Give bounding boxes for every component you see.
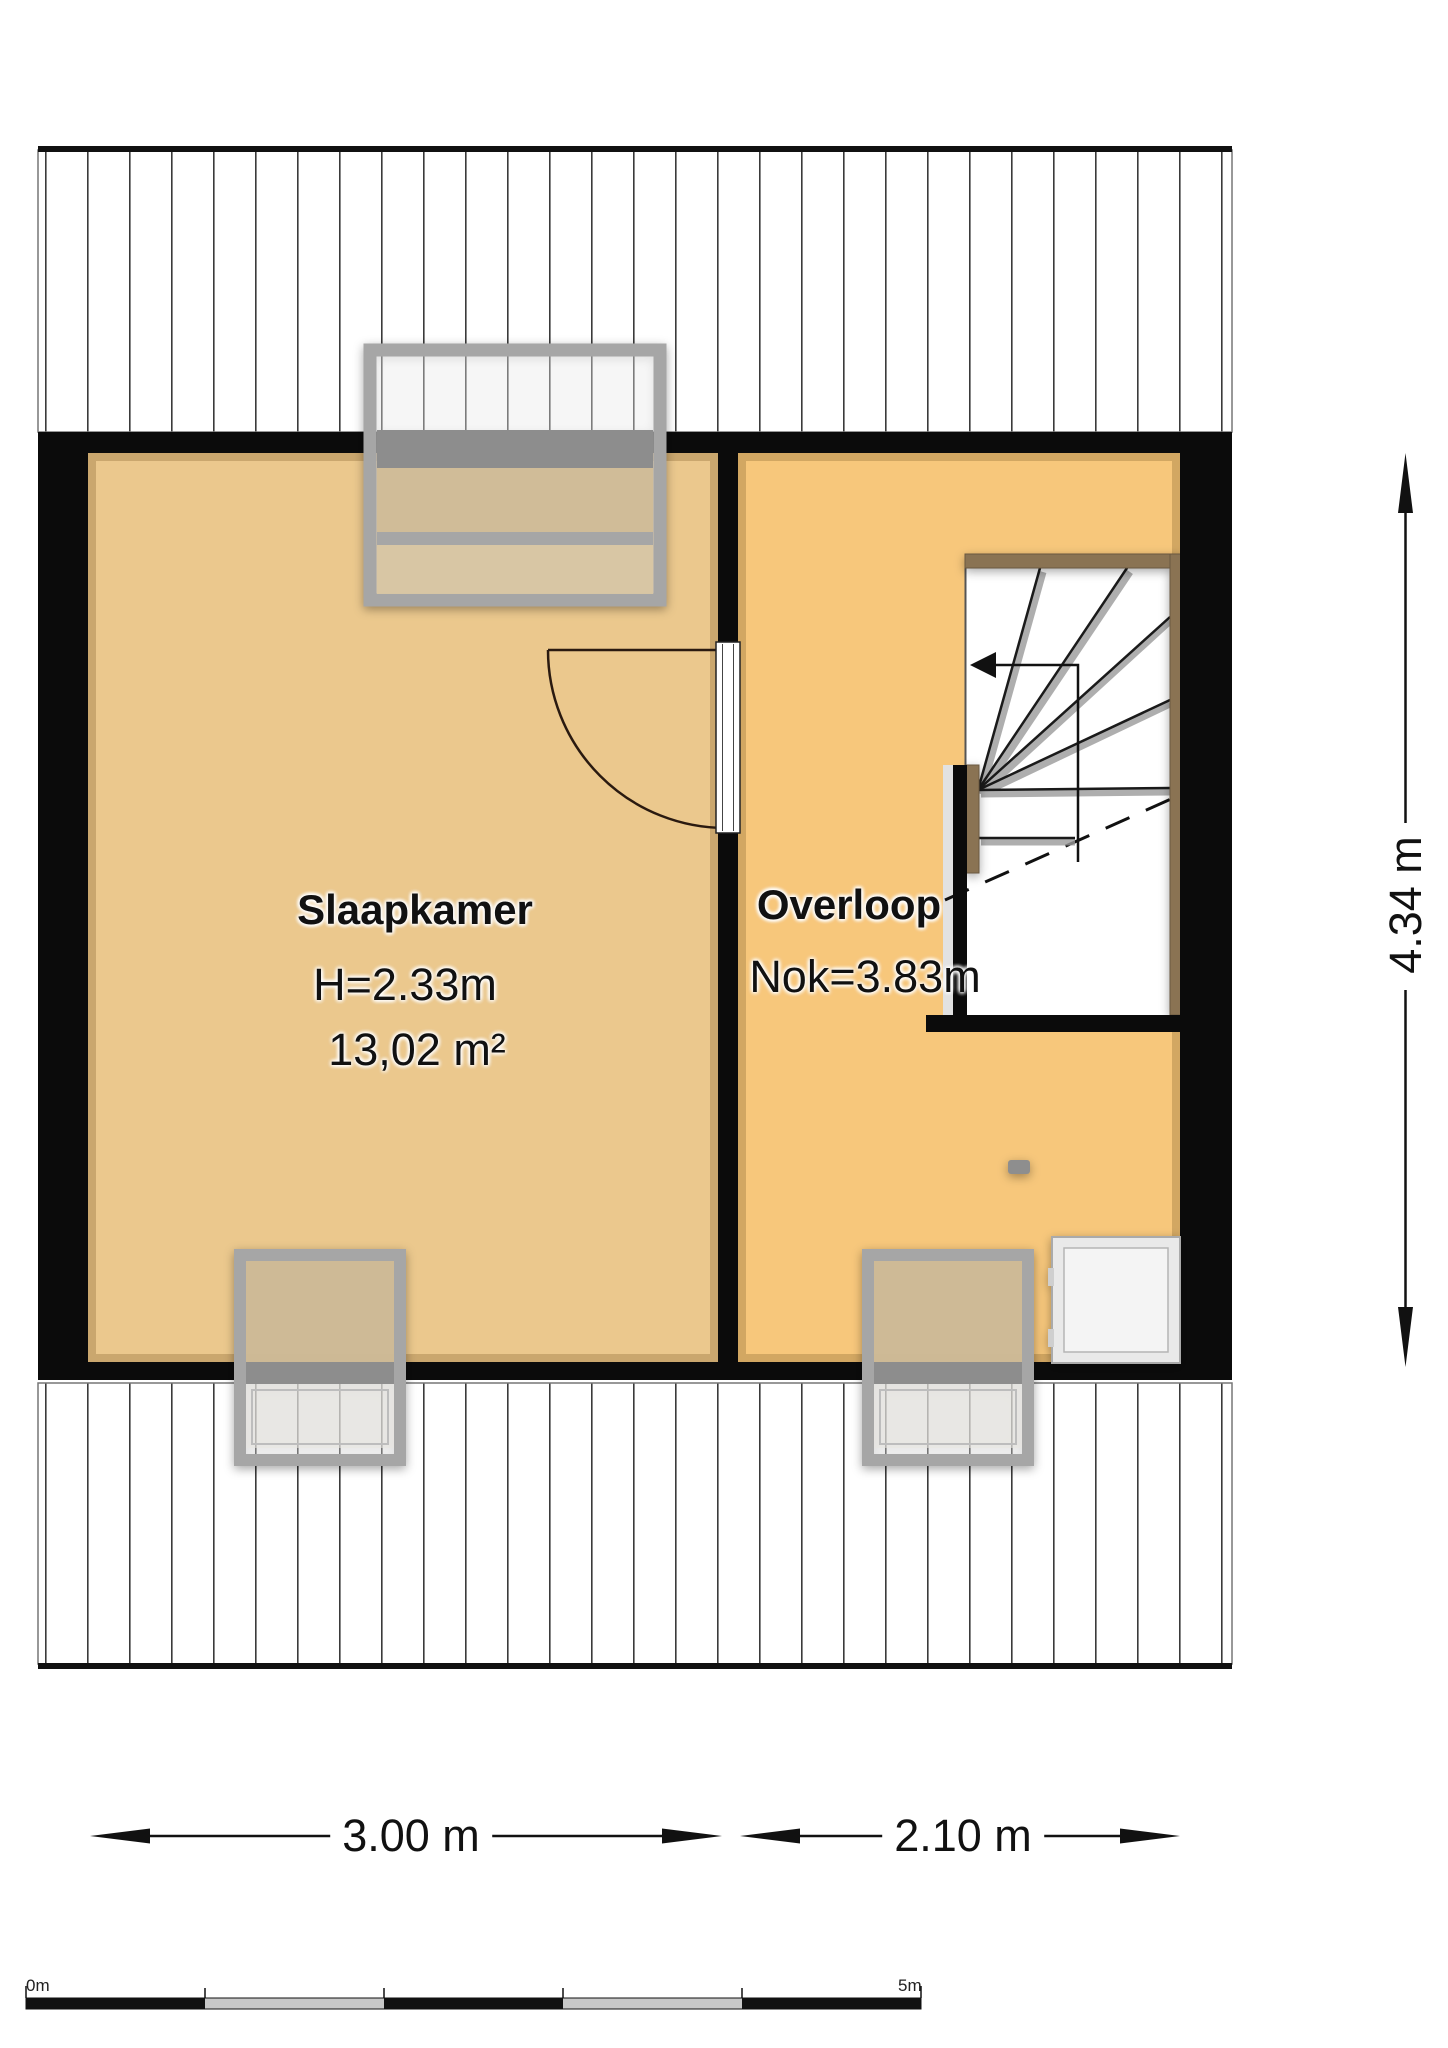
- skylight-top-window: [370, 350, 660, 600]
- dimension-bedroom-width: 3.00 m: [330, 1810, 492, 1862]
- scale-end-label: 5m: [898, 1976, 922, 1996]
- landing-ridge-height: Nok=3.83m: [749, 951, 980, 1003]
- skylight-bottom-right-window: [868, 1255, 1028, 1460]
- skylight-bottom-left-window: [240, 1255, 400, 1460]
- dimension-arrow-up-icon: [1398, 453, 1413, 513]
- scale-start-label: 0m: [26, 1976, 50, 1996]
- wall-divider-lower: [718, 830, 738, 1362]
- boiler-pipe-stub: [1008, 1160, 1030, 1174]
- wall-left-party: [38, 432, 88, 1380]
- dimension-landing-width: 2.10 m: [882, 1810, 1044, 1862]
- landing-label: Overloop: [757, 881, 941, 929]
- door-leaf: [716, 642, 740, 833]
- stair-newel-post: [966, 765, 979, 873]
- wall-divider-upper: [718, 453, 738, 645]
- stair-bottom-wall: [926, 1015, 1183, 1032]
- bedroom-label: Slaapkamer: [297, 886, 533, 934]
- scale-bar: [26, 1986, 921, 2009]
- bedroom-ceiling-height: H=2.33m: [313, 959, 497, 1011]
- dimension-arrow-left-icon: [740, 1829, 800, 1844]
- cabinet-unit: [1048, 1237, 1180, 1363]
- roof-hatch-bottom: [38, 1383, 1232, 1669]
- floorplan-drawing: [0, 0, 1448, 2048]
- dimension-arrow-right-icon: [662, 1829, 722, 1844]
- dimension-arrow-left-icon: [90, 1829, 150, 1844]
- dimension-total-depth: 4.34 m: [1380, 824, 1432, 986]
- floorplan-canvas: Slaapkamer H=2.33m 13,02 m² Overloop Nok…: [0, 0, 1448, 2048]
- dimension-arrow-down-icon: [1398, 1307, 1413, 1367]
- wall-bottom: [38, 1362, 1232, 1380]
- dimension-arrow-right-icon: [1120, 1829, 1180, 1844]
- bedroom-area: 13,02 m²: [328, 1024, 506, 1076]
- wall-right-party: [1180, 432, 1232, 1380]
